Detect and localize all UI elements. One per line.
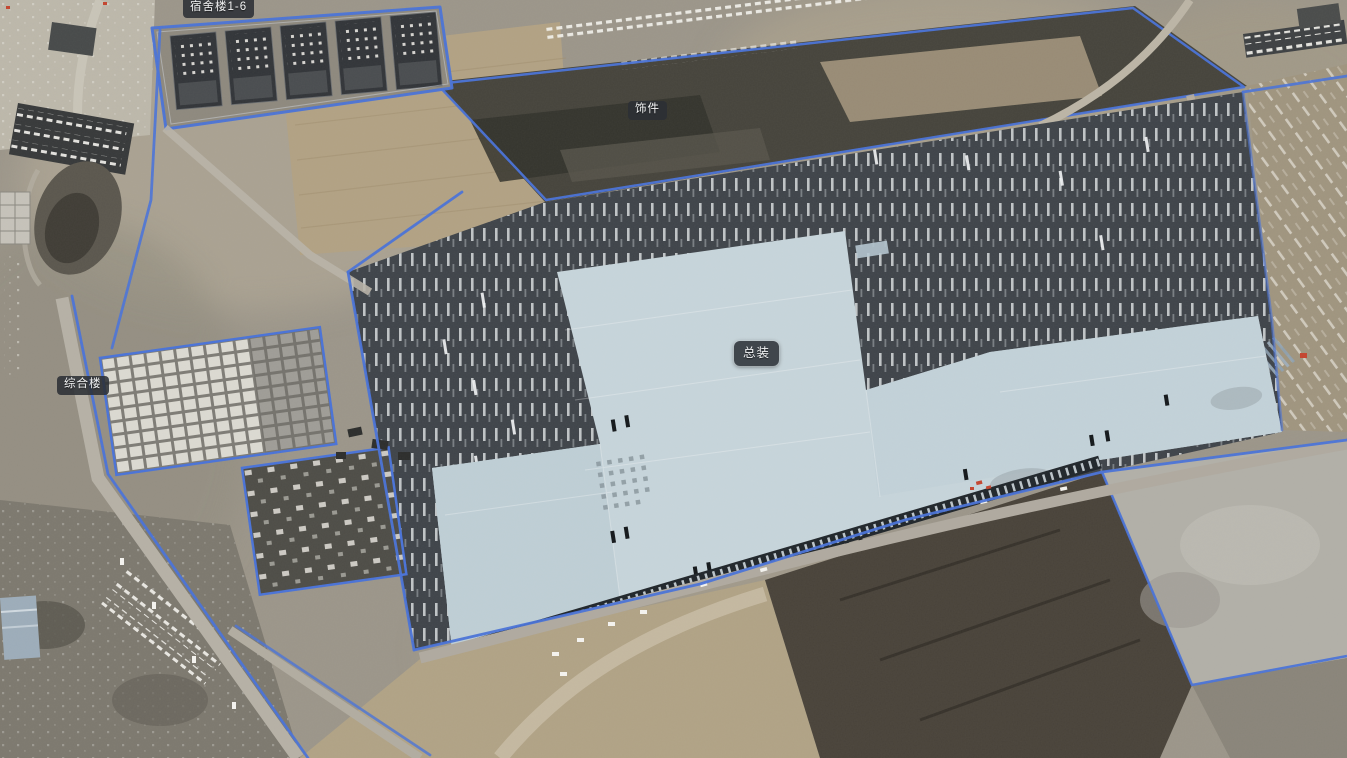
satellite-canvas[interactable]: 宿舍楼1-6 饰件 总装 综合楼 <box>0 0 1347 758</box>
photo-grain-overlay <box>0 0 1347 758</box>
label-badge-complex-building: 综合楼 <box>57 376 109 395</box>
satellite-image <box>0 0 1347 758</box>
label-badge-dormitories: 宿舍楼1-6 <box>183 0 254 18</box>
label-badge-trim-shop: 饰件 <box>628 101 667 120</box>
label-badge-final-assembly: 总装 <box>734 341 779 366</box>
